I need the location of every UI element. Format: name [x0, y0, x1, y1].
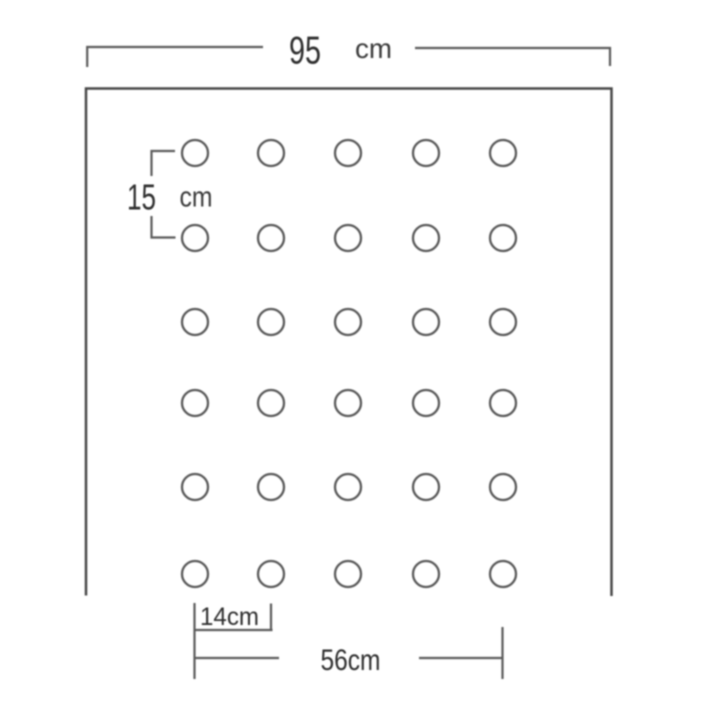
svg-text:14cm: 14cm [200, 603, 259, 631]
svg-text:56cm: 56cm [321, 644, 381, 677]
svg-text:15: 15 [127, 177, 156, 218]
svg-text:cm: cm [355, 33, 392, 64]
svg-text:cm: cm [180, 182, 213, 214]
svg-text:95: 95 [289, 30, 321, 73]
